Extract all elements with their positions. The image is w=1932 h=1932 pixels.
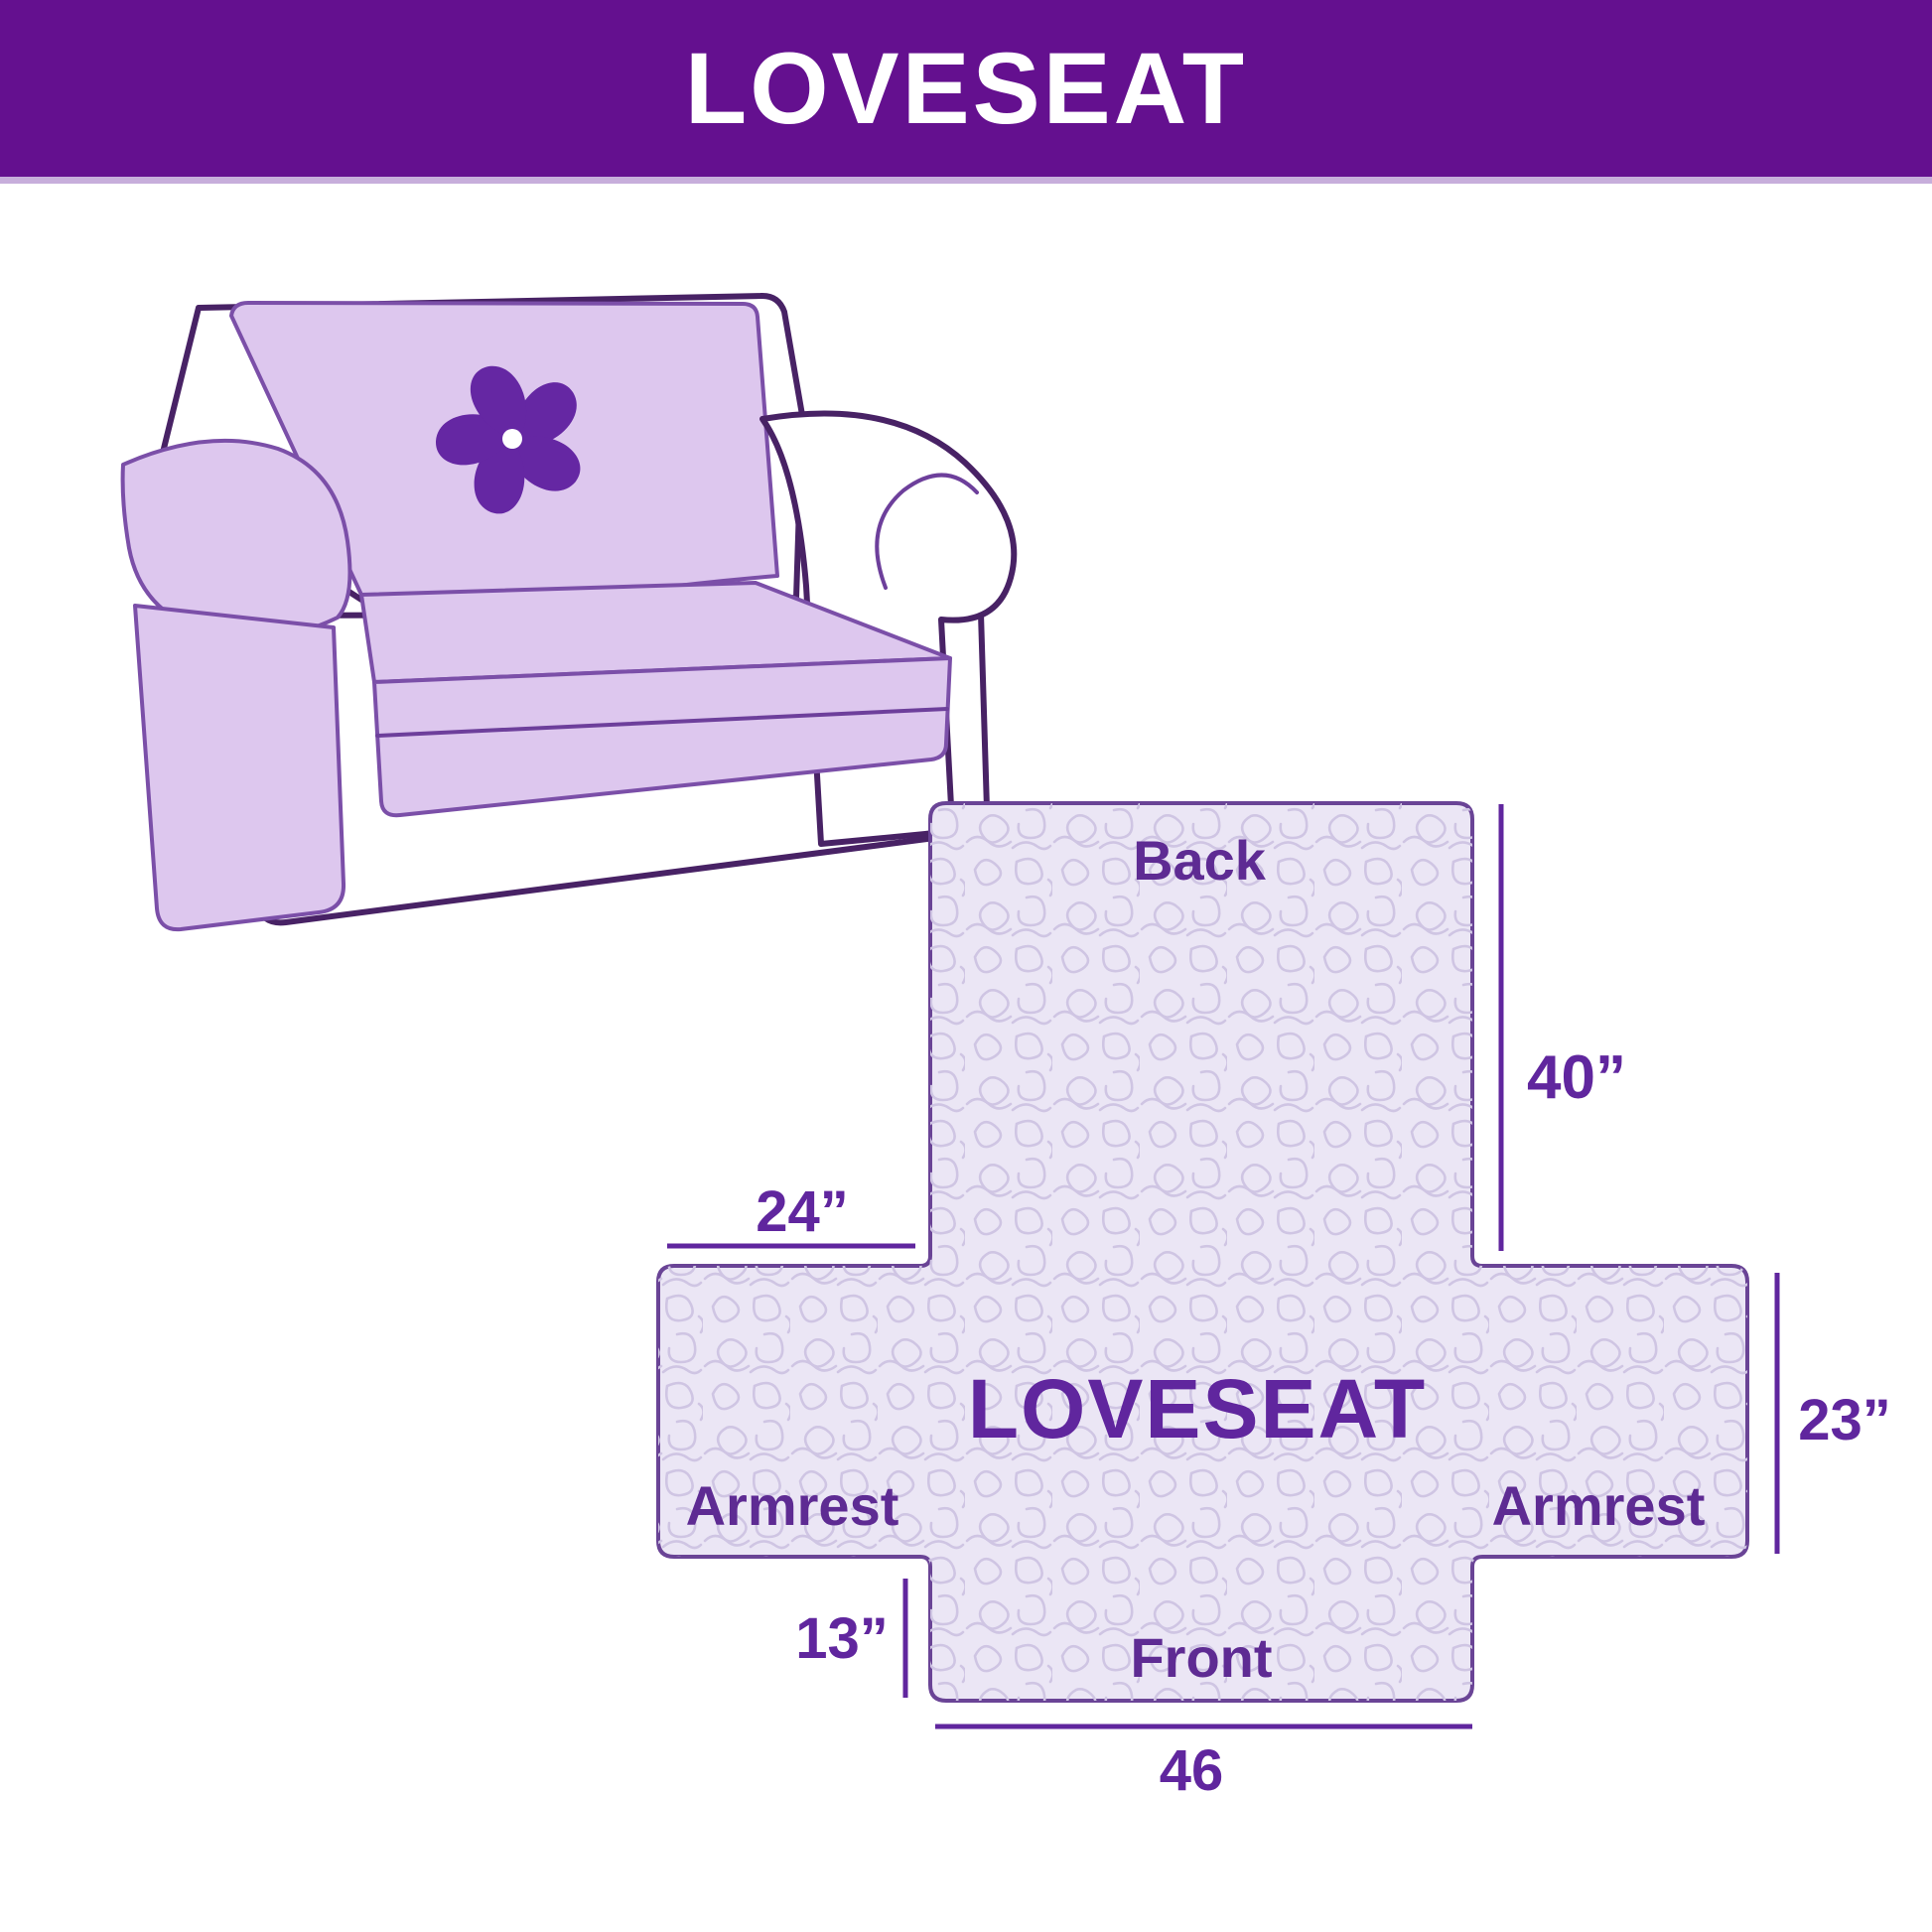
page: LOVESEAT — [0, 0, 1932, 1932]
dim-text-13: 13” — [795, 1606, 889, 1671]
quilt-texture — [658, 803, 1747, 1701]
dim-text-46: 46 — [1160, 1738, 1224, 1803]
label-back: Back — [1133, 829, 1267, 892]
label-front: Front — [1130, 1626, 1272, 1689]
page-title: LOVESEAT — [685, 38, 1247, 139]
header-accent-line — [0, 177, 1932, 184]
label-armrest-left: Armrest — [686, 1474, 899, 1537]
dim-text-40: 40” — [1527, 1043, 1626, 1112]
dim-text-23: 23” — [1798, 1388, 1891, 1452]
cover-dimension-diagram: Back LOVESEAT Armrest Armrest Front 24” … — [616, 764, 1932, 1857]
dim-text-24: 24” — [756, 1179, 849, 1244]
header-bar: LOVESEAT — [0, 0, 1932, 177]
label-armrest-right: Armrest — [1492, 1474, 1706, 1537]
left-arm-front-cover — [135, 606, 344, 929]
label-loveseat: LOVESEAT — [968, 1362, 1428, 1455]
